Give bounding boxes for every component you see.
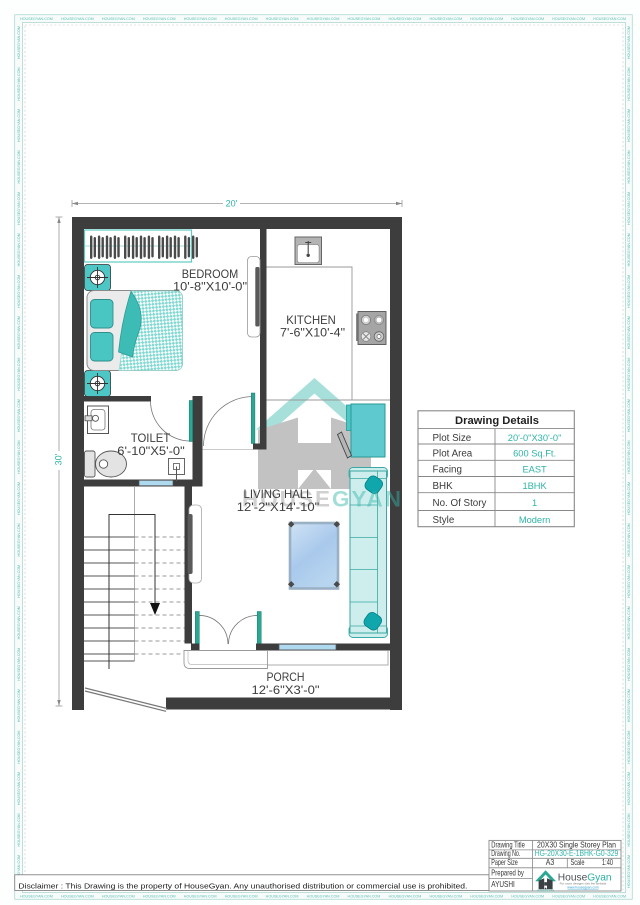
svg-text:BHK: BHK [433,481,454,492]
svg-text:HG-20X30-E-1BHK-G0-329: HG-20X30-E-1BHK-G0-329 [535,848,619,858]
svg-text:HOUSEGYAN: HOUSEGYAN [537,889,554,893]
svg-text:www.housegyan.com: www.housegyan.com [567,885,598,889]
svg-text:7'-6"X10'-4": 7'-6"X10'-4" [280,325,345,339]
svg-text:6'-10"X5'-0": 6'-10"X5'-0" [117,444,185,458]
svg-text:No. Of Story: No. Of Story [433,498,487,509]
svg-text:HOUSEGYAN.COM HOUSEGYAN: HOUSEGYAN.COM HOUSEGYAN.COM HOUSEGYAN.CO… [17,26,21,888]
svg-text:HOUSEGYAN.COM HOUSEGYAN: HOUSEGYAN.COM HOUSEGYAN.COM HOUSEGYAN.CO… [20,17,626,21]
svg-text:10'-8"X10'-0": 10'-8"X10'-0" [173,280,247,294]
svg-text:20': 20' [226,199,238,209]
svg-text:Style: Style [433,515,455,526]
svg-text:AYUSHI: AYUSHI [491,879,515,889]
svg-text:Facing: Facing [433,465,462,476]
svg-text:LIVING HALL: LIVING HALL [244,487,313,501]
svg-text:A3: A3 [546,857,555,867]
svg-text:HOUSEGYAN.COM HOUSEGYAN: HOUSEGYAN.COM HOUSEGYAN.COM HOUSEGYAN.CO… [20,895,626,899]
svg-text:PORCH: PORCH [267,670,305,684]
svg-text:12'-2"X14'-10": 12'-2"X14'-10" [237,500,320,514]
svg-text:1:40: 1:40 [602,857,613,867]
svg-text:Plot Size: Plot Size [433,433,472,444]
svg-text:Disclaimer : This Drawing is t: Disclaimer : This Drawing is the propert… [18,881,467,890]
svg-text:Prepared by: Prepared by [491,868,524,878]
svg-text:1: 1 [532,498,537,508]
svg-text:20'-0"X30'-0": 20'-0"X30'-0" [508,433,562,443]
svg-text:30': 30' [54,453,64,465]
svg-text:Plot Area: Plot Area [433,448,473,459]
svg-text:600 Sq.Ft.: 600 Sq.Ft. [513,448,556,458]
svg-text:12'-6"X3'-0": 12'-6"X3'-0" [252,683,320,697]
svg-text:TOILET: TOILET [131,431,171,445]
svg-text:Paper Size: Paper Size [491,857,518,867]
svg-text:Drawing Details: Drawing Details [455,415,539,427]
svg-text:EAST: EAST [522,465,547,475]
svg-text:HOUSEGYAN.COM HOUSEGYAN: HOUSEGYAN.COM HOUSEGYAN.COM HOUSEGYAN.CO… [627,26,631,888]
svg-text:1BHK: 1BHK [522,481,547,491]
svg-text:Modern: Modern [519,515,551,525]
svg-text:Scale: Scale [571,857,585,867]
